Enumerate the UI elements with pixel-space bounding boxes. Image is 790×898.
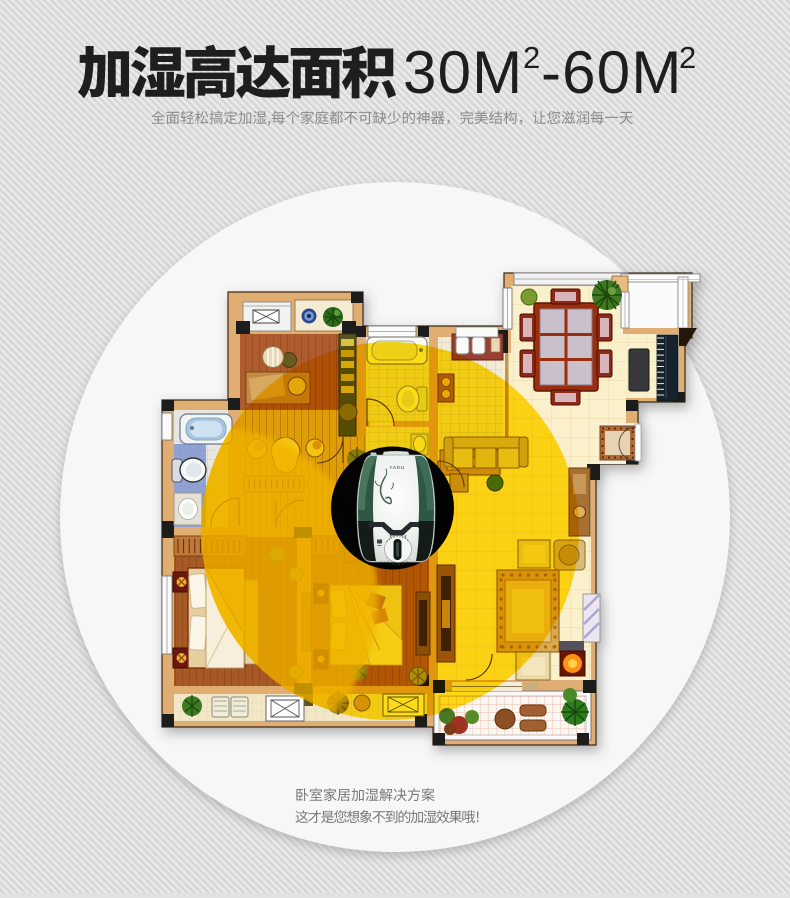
svg-text:-60M: -60M xyxy=(541,39,683,106)
svg-text:YADU: YADU xyxy=(389,465,405,471)
svg-text:30M: 30M xyxy=(403,39,523,106)
svg-text:2: 2 xyxy=(523,40,540,75)
svg-text:2: 2 xyxy=(679,40,696,75)
